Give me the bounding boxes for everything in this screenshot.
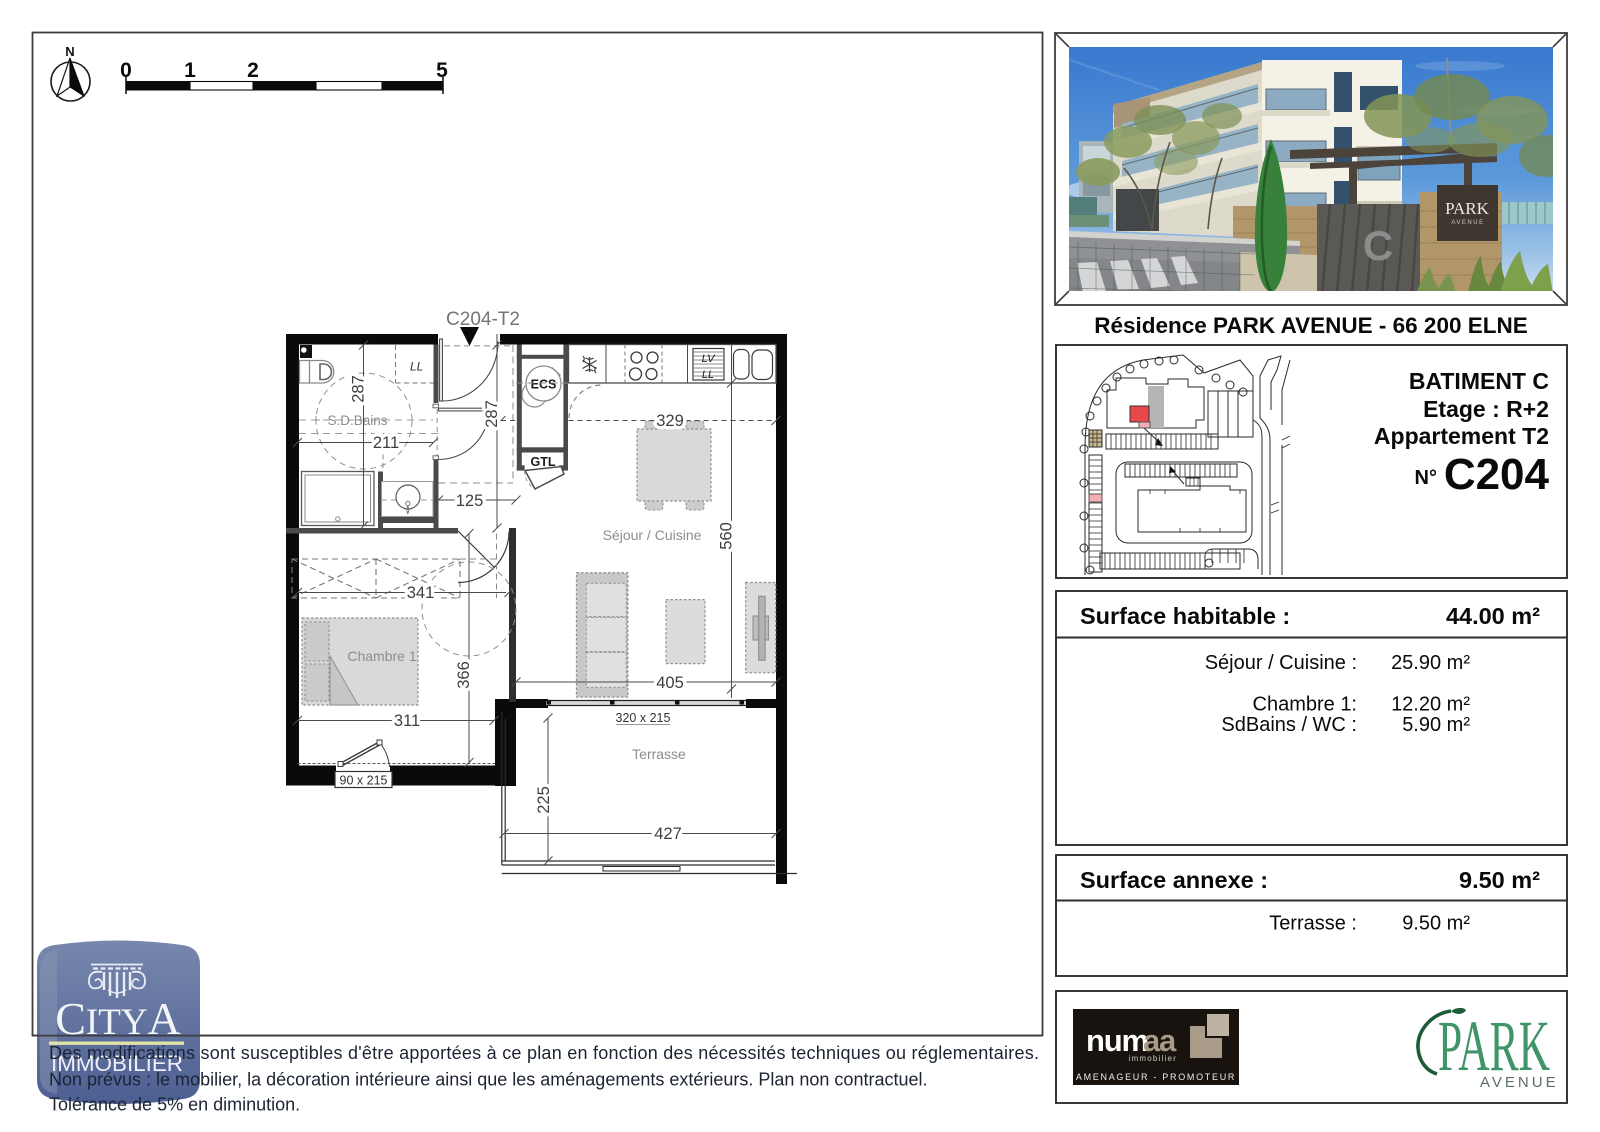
- svg-text:5.90 m²: 5.90 m²: [1402, 714, 1470, 736]
- svg-text:12.20 m²: 12.20 m²: [1391, 694, 1470, 716]
- svg-text:num: num: [1086, 1023, 1148, 1058]
- svg-text:N: N: [65, 44, 74, 59]
- svg-text:BATIMENT C: BATIMENT C: [1409, 368, 1549, 394]
- svg-text:Chambre 1: Chambre 1: [347, 648, 416, 664]
- svg-text:N°: N°: [1415, 467, 1437, 489]
- svg-text:Etage : R+2: Etage : R+2: [1423, 396, 1549, 422]
- svg-text:25.90 m²: 25.90 m²: [1391, 652, 1470, 674]
- svg-text:560: 560: [718, 522, 736, 550]
- svg-text:225: 225: [535, 786, 553, 814]
- svg-text:405: 405: [656, 674, 684, 692]
- svg-text:Séjour / Cuisine :: Séjour / Cuisine :: [1205, 652, 1357, 674]
- svg-text:AVENUE: AVENUE: [1480, 1074, 1559, 1091]
- svg-text:44.00 m²: 44.00 m²: [1446, 603, 1540, 629]
- svg-text:S.D.Bains: S.D.Bains: [327, 413, 387, 428]
- svg-text:Non prévus : le mobilier, la d: Non prévus : le mobilier, la décoration …: [49, 1070, 927, 1090]
- svg-text:LL: LL: [410, 360, 423, 374]
- svg-text:AMENAGEUR - PROMOTEUR: AMENAGEUR - PROMOTEUR: [1076, 1072, 1236, 1082]
- svg-text:427: 427: [654, 825, 682, 843]
- svg-text:2: 2: [247, 59, 259, 82]
- svg-text:LL: LL: [702, 369, 714, 381]
- svg-text:366: 366: [455, 661, 473, 689]
- svg-text:aa: aa: [1143, 1023, 1177, 1058]
- svg-text:C: C: [1363, 222, 1393, 269]
- svg-text:C204: C204: [1444, 450, 1550, 499]
- svg-text:90 x 215: 90 x 215: [340, 774, 388, 788]
- svg-text:320 x 215: 320 x 215: [616, 711, 671, 725]
- svg-text:Surface annexe :: Surface annexe :: [1080, 867, 1268, 893]
- svg-text:9.50 m²: 9.50 m²: [1402, 913, 1470, 935]
- svg-text:311: 311: [394, 712, 420, 730]
- svg-text:9.50 m²: 9.50 m²: [1459, 867, 1540, 893]
- svg-text:SdBains / WC :: SdBains / WC :: [1221, 714, 1357, 736]
- svg-text:PARK: PARK: [1445, 199, 1490, 218]
- svg-text:287: 287: [350, 375, 368, 403]
- svg-text:329: 329: [656, 412, 684, 430]
- svg-text:Surface habitable :: Surface habitable :: [1080, 603, 1290, 629]
- svg-text:Tolérance de 5% en diminution.: Tolérance de 5% en diminution.: [49, 1095, 300, 1115]
- svg-text:287: 287: [483, 400, 501, 428]
- svg-text:Appartement T2: Appartement T2: [1374, 423, 1549, 449]
- svg-text:immobilier: immobilier: [1129, 1054, 1177, 1063]
- svg-text:5: 5: [436, 59, 448, 82]
- svg-text:GTL: GTL: [531, 455, 556, 469]
- svg-text:AVENUE: AVENUE: [1451, 220, 1484, 226]
- svg-text:1: 1: [184, 59, 196, 82]
- svg-text:Terrasse :: Terrasse :: [1269, 913, 1357, 935]
- svg-text:Séjour / Cuisine: Séjour / Cuisine: [603, 527, 702, 543]
- svg-text:ECS: ECS: [531, 378, 557, 392]
- svg-text:Des modifications sont suscept: Des modifications sont susceptibles d'êt…: [49, 1043, 1039, 1063]
- svg-text:125: 125: [456, 492, 484, 510]
- svg-text:C204-T2: C204-T2: [446, 309, 520, 330]
- svg-text:341: 341: [407, 584, 435, 602]
- svg-text:211: 211: [373, 434, 399, 452]
- svg-text:LV: LV: [702, 353, 717, 365]
- svg-text:Terrasse: Terrasse: [632, 746, 686, 762]
- svg-text:0: 0: [120, 59, 132, 82]
- svg-text:Résidence PARK AVENUE - 66 20: Résidence PARK AVENUE - 66 200 ELNE: [1094, 313, 1527, 338]
- svg-text:Chambre 1:: Chambre 1:: [1253, 694, 1358, 716]
